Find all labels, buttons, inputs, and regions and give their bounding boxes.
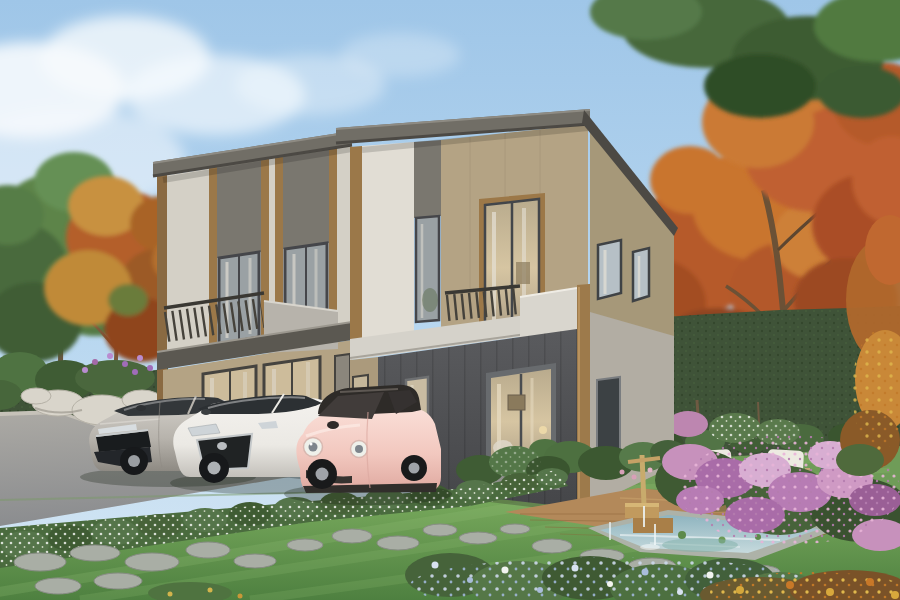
facade-panel <box>283 149 329 249</box>
wall-white-column <box>362 142 414 339</box>
window-trim <box>329 147 337 328</box>
window-side-upper-2 <box>633 248 649 301</box>
car-mirror <box>136 405 146 411</box>
divider-trim <box>350 146 362 342</box>
interior-lamp-glow <box>539 426 547 434</box>
car-badge <box>217 442 227 450</box>
window-narrow-upstairs <box>416 216 439 322</box>
facade-panel <box>217 159 261 258</box>
facade-panel <box>414 140 441 218</box>
car-mirror <box>327 421 339 429</box>
property-render-image <box>0 0 900 600</box>
car-mirror <box>201 409 211 415</box>
interior-artwork <box>508 395 525 410</box>
window-side-upper-1 <box>598 240 621 299</box>
